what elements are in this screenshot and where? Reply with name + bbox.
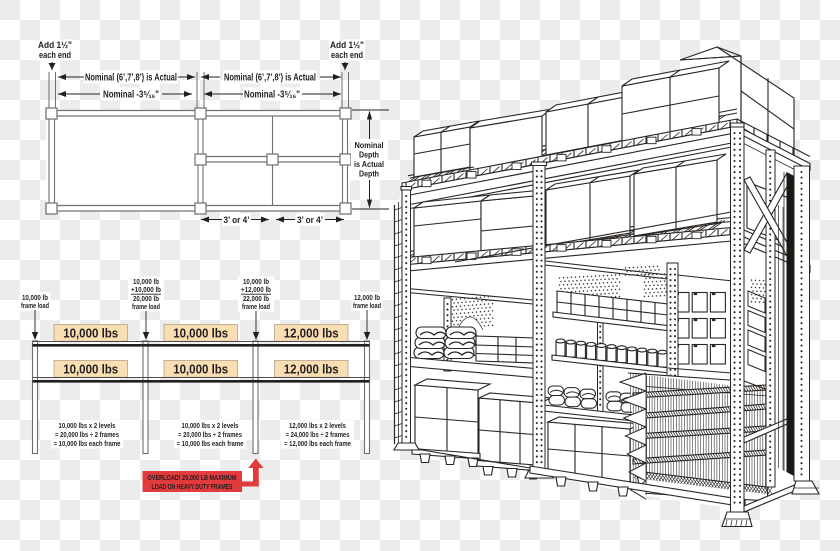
svg-text:frame load: frame load: [353, 301, 381, 310]
svg-text:Depth: Depth: [359, 150, 379, 160]
svg-text:= 20,000 lbs ÷ 2 frames: = 20,000 lbs ÷ 2 frames: [55, 430, 119, 439]
svg-text:Depth: Depth: [359, 169, 379, 179]
svg-text:10,000 lbs x 2 levels: 10,000 lbs x 2 levels: [182, 421, 239, 430]
svg-text:+12,000 lb: +12,000 lb: [241, 285, 272, 294]
svg-text:Nominal (6’,7’,8’) is Actual: Nominal (6’,7’,8’) is Actual: [85, 73, 177, 84]
svg-text:= 10,000 lbs each frame: = 10,000 lbs each frame: [54, 439, 121, 448]
svg-text:OVERLOAD! 20,000 LB MAXIMUM: OVERLOAD! 20,000 LB MAXIMUM: [148, 473, 237, 482]
svg-text:frame load: frame load: [242, 302, 270, 311]
svg-text:each end: each end: [331, 50, 363, 60]
svg-text:frame load: frame load: [21, 301, 49, 310]
svg-text:12,000 lbs x 2 levels: 12,000 lbs x 2 levels: [289, 421, 346, 430]
svg-text:3’ or 4’: 3’ or 4’: [224, 215, 250, 226]
svg-text:10,000 lbs: 10,000 lbs: [173, 363, 228, 377]
svg-text:10,000 lbs: 10,000 lbs: [173, 327, 228, 341]
svg-text:+10,000 lb: +10,000 lb: [131, 285, 162, 294]
svg-text:Add 1½": Add 1½": [38, 40, 72, 50]
svg-text:10,000 lbs: 10,000 lbs: [63, 363, 118, 377]
svg-text:= 20,000 lbs ÷ 2 frames: = 20,000 lbs ÷ 2 frames: [178, 430, 242, 439]
svg-text:10,000 lbs x 2 levels: 10,000 lbs x 2 levels: [59, 421, 116, 430]
svg-text:frame load: frame load: [132, 302, 160, 311]
svg-text:Nominal -3⁵⁄₁₆": Nominal -3⁵⁄₁₆": [103, 90, 159, 101]
svg-text:= 12,000 lbs each frame: = 12,000 lbs each frame: [284, 439, 351, 448]
svg-text:12,000 lbs: 12,000 lbs: [284, 363, 339, 377]
svg-text:= 24,000 lbs ÷ 2 frames: = 24,000 lbs ÷ 2 frames: [286, 430, 350, 439]
svg-text:3’ or 4’: 3’ or 4’: [297, 215, 323, 226]
svg-text:= 10,000 lbs each frame: = 10,000 lbs each frame: [177, 439, 244, 448]
svg-text:each end: each end: [39, 50, 71, 60]
svg-text:LOAD ON HEAVY DUTY FRAMES: LOAD ON HEAVY DUTY FRAMES: [152, 482, 233, 491]
svg-text:10,000 lbs: 10,000 lbs: [63, 327, 118, 341]
svg-text:12,000 lbs: 12,000 lbs: [284, 327, 339, 341]
svg-text:Nominal: Nominal: [355, 140, 384, 150]
svg-text:Add 1½": Add 1½": [330, 40, 364, 50]
svg-text:is Actual: is Actual: [354, 159, 384, 169]
svg-text:Nominal (6’,7’,8’) is Actual: Nominal (6’,7’,8’) is Actual: [224, 73, 316, 84]
svg-text:Nominal -3⁵⁄₁₆": Nominal -3⁵⁄₁₆": [244, 90, 300, 101]
